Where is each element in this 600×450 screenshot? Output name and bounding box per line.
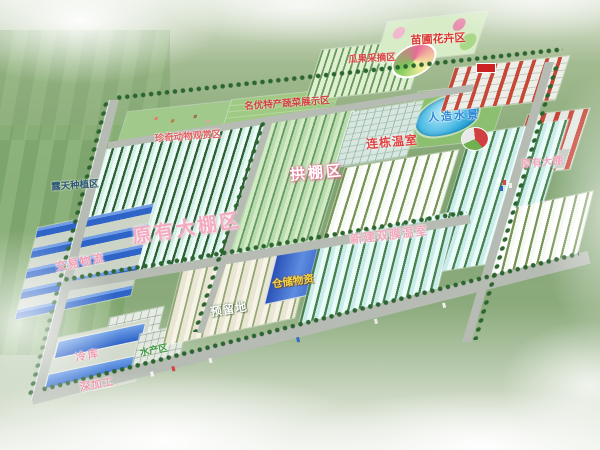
cloud-top-mid bbox=[160, 0, 440, 45]
label-artificial-water-feature: 人造水景 bbox=[428, 109, 481, 124]
entrance-sign bbox=[476, 63, 496, 73]
label-fruit-picking-area: 瓜果采摘区 bbox=[348, 53, 396, 65]
cloud-right-low bbox=[500, 320, 600, 450]
label-nursery-flower-area: 苗圃花卉区 bbox=[410, 32, 466, 46]
aerial-site-plan: 苗圃花卉区 瓜果采摘区 名优特产蔬菜展示区 珍奇动物观赏区 露天种植区 连栋温室… bbox=[0, 0, 600, 450]
cars-parking bbox=[497, 178, 500, 183]
label-arch-shed-area: 拱棚区 bbox=[289, 163, 344, 183]
cloud-right bbox=[540, 70, 600, 350]
animal-figures bbox=[154, 117, 158, 120]
